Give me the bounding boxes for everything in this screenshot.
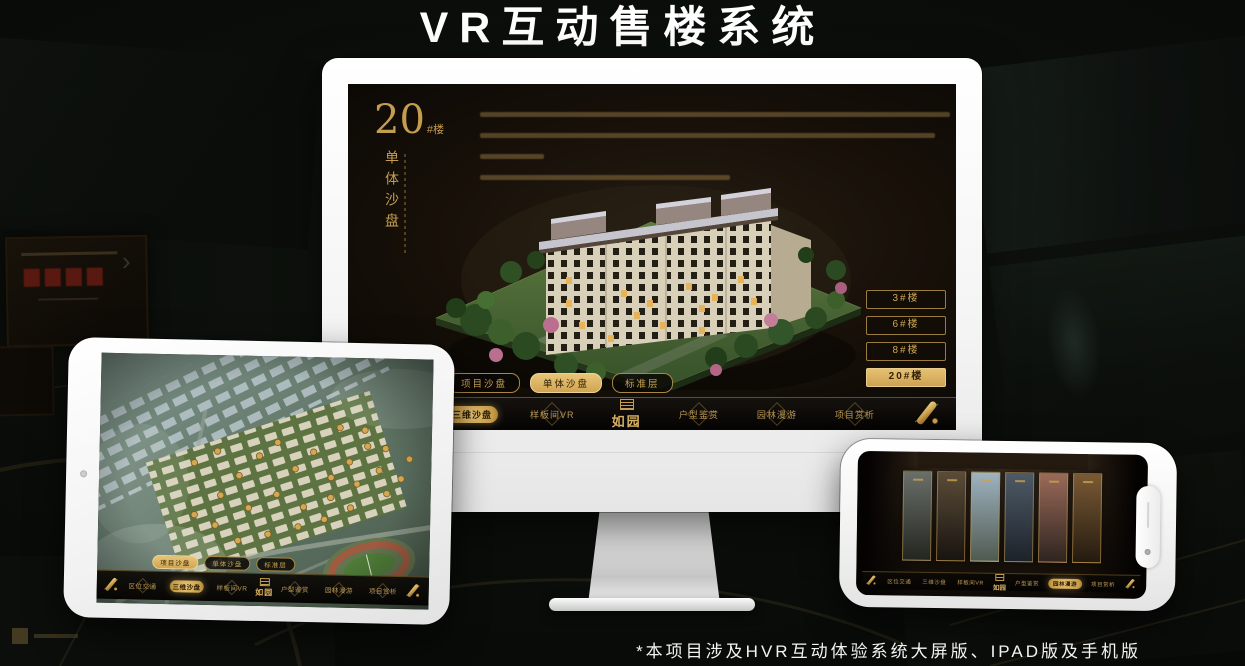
scroll-icon[interactable] [103, 577, 121, 593]
building-render [416, 150, 876, 390]
monitor-stand-base [549, 598, 755, 611]
plaque-caption-line [21, 251, 117, 256]
nav-item[interactable]: 样板间VR [524, 406, 581, 423]
plaque-calligraphy [24, 268, 103, 287]
logo-text: 如园 [255, 587, 273, 598]
building-button[interactable]: 20#楼 [866, 368, 946, 387]
nav-item[interactable]: 区位交通 [885, 576, 913, 586]
monitor-stand-neck [588, 508, 720, 604]
brand-logo: 如园 [255, 578, 273, 598]
view-tab[interactable]: 标准层 [256, 557, 295, 572]
brand-logo: 如园 [993, 573, 1006, 591]
nav-item[interactable]: 户型鉴赏 [278, 582, 312, 595]
view-tab[interactable]: 标准层 [612, 373, 673, 393]
phone-notch [1135, 486, 1160, 568]
vertical-deco-line [404, 154, 406, 254]
scroll-icon[interactable] [405, 583, 423, 599]
nav-item[interactable]: 项目赏析 [366, 584, 400, 597]
nav-item[interactable]: 项目赏析 [829, 406, 881, 423]
interior-beam [918, 452, 1088, 470]
background-plaque-partial [0, 345, 55, 416]
view-tabs: 项目沙盘单体沙盘标准层 [448, 373, 673, 393]
building-button[interactable]: 8#楼 [866, 342, 946, 361]
tablet-view-tabs: 项目沙盘单体沙盘标准层 [152, 555, 295, 572]
nav-item[interactable]: 区位交通 [125, 579, 159, 592]
nav-item[interactable]: 园林漫游 [322, 583, 356, 596]
scene-gallery [902, 471, 1102, 564]
logo-icon [620, 399, 634, 410]
speaker-slit [1147, 502, 1149, 528]
logo-text: 如园 [612, 411, 642, 430]
footnote-caption: *本项目涉及HVR互动体验系统大屏版、IPAD版及手机版 [0, 637, 1141, 662]
gallery-panel[interactable] [970, 471, 1000, 561]
poster-canvas: › VR互动售楼系统 20#楼 单体沙盘 [0, 0, 1245, 666]
page-title: VR互动售楼系统 [0, 0, 1245, 56]
nav-item[interactable]: 户型鉴赏 [673, 406, 725, 423]
tablet-device: 项目沙盘单体沙盘标准层 区位交通三维沙盘样板间VR 如园 [63, 337, 455, 625]
nav-item[interactable]: 项目赏析 [1089, 579, 1117, 589]
gallery-panel[interactable] [1004, 472, 1034, 562]
nav-item[interactable]: 三维沙盘 [920, 576, 948, 586]
building-button[interactable]: 3#楼 [866, 290, 946, 309]
gallery-panel[interactable] [936, 471, 966, 561]
gallery-panel[interactable] [902, 471, 932, 561]
chevron-right-icon: › [122, 246, 131, 277]
building-selector: 3#楼6#楼8#楼20#楼 [866, 290, 946, 387]
nav-item[interactable]: 户型鉴赏 [1013, 578, 1041, 588]
tablet-camera [80, 470, 87, 477]
logo-icon [995, 573, 1004, 580]
front-camera [1145, 549, 1151, 555]
phone-device: 区位交通三维沙盘样板间VR 如园 户型鉴赏园林漫游项目赏析 [839, 439, 1177, 612]
brand-logo: 如园 [612, 399, 642, 430]
scroll-icon[interactable] [865, 575, 878, 586]
logo-text: 如园 [993, 581, 1006, 591]
building-button[interactable]: 6#楼 [866, 316, 946, 335]
view-tab[interactable]: 项目沙盘 [448, 373, 520, 393]
nav-item[interactable]: 园林漫游 [1048, 578, 1082, 588]
nav-item[interactable]: 园林漫游 [751, 406, 803, 423]
view-tab[interactable]: 单体沙盘 [204, 556, 250, 571]
plaque-subline [38, 298, 98, 301]
gallery-panel[interactable] [1072, 473, 1102, 563]
logo-icon [259, 578, 269, 586]
nav-item[interactable]: 三维沙盘 [446, 406, 498, 423]
nav-item[interactable]: 样板间VR [213, 581, 250, 594]
block-subtitle-vertical: 单体沙盘 [382, 150, 402, 270]
scroll-icon[interactable] [1124, 579, 1137, 590]
phone-nav-bar: 区位交通三维沙盘样板间VR 如园 户型鉴赏园林漫游项目赏析 [862, 571, 1140, 593]
gallery-panel[interactable] [1038, 472, 1068, 562]
tablet-screen: 项目沙盘单体沙盘标准层 区位交通三维沙盘样板间VR 如园 [96, 353, 433, 610]
nav-item[interactable]: 三维沙盘 [169, 580, 203, 593]
block-heading: 20#楼 [374, 100, 444, 140]
block-number-suffix: #楼 [427, 124, 444, 136]
nav-item[interactable]: 样板间VR [955, 577, 986, 587]
view-tab[interactable]: 项目沙盘 [152, 555, 198, 570]
view-tab[interactable]: 单体沙盘 [530, 373, 602, 393]
phone-screen: 区位交通三维沙盘样板间VR 如园 户型鉴赏园林漫游项目赏析 [856, 451, 1148, 599]
scroll-icon[interactable] [912, 401, 944, 427]
block-number: 20 [374, 97, 425, 143]
